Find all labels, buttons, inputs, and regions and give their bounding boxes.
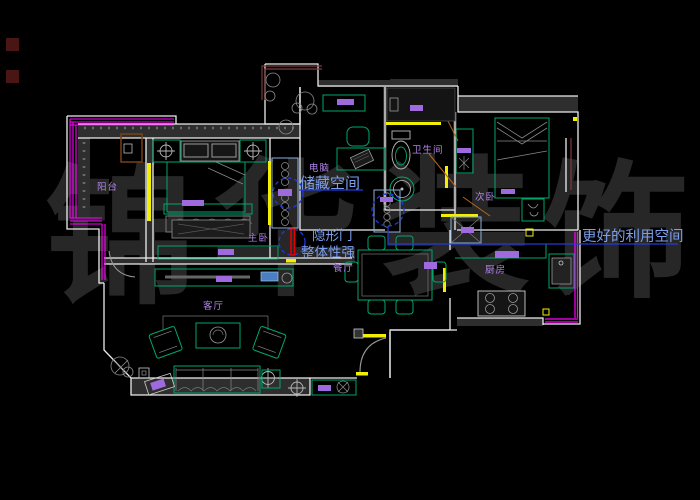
stove — [478, 291, 525, 316]
toilet-tank — [392, 131, 410, 139]
entry-door-arc — [360, 338, 386, 372]
annotation-better-use: 更好的利用空间 — [582, 228, 684, 245]
desk-chair — [347, 127, 369, 146]
cad-canvas[interactable]: 锦 华 装 饰 — [0, 0, 700, 500]
label-dining: 餐厅 — [333, 262, 354, 274]
label-master-bedroom: 主卧 — [248, 232, 269, 244]
label-living: 客厅 — [203, 300, 224, 312]
watermark-stamp — [6, 70, 19, 83]
floorplan-drawing: 锦 华 装 饰 — [0, 0, 700, 500]
annotation-hidden-door-2: 整体性强 — [301, 245, 355, 261]
watermark-stamp — [6, 38, 19, 51]
label-bathroom: 卫生间 — [412, 144, 444, 156]
entry-jamb — [354, 329, 363, 338]
label-second-bedroom: 次卧 — [475, 191, 496, 203]
av-device — [261, 272, 278, 281]
annotation-hidden-door-1: 隐形门 — [312, 228, 353, 244]
label-study: 电脑 — [309, 162, 330, 174]
annotation-storage: 储藏空间 — [300, 174, 360, 192]
label-balcony: 阳台 — [97, 181, 118, 193]
label-kitchen: 厨房 — [485, 264, 506, 276]
